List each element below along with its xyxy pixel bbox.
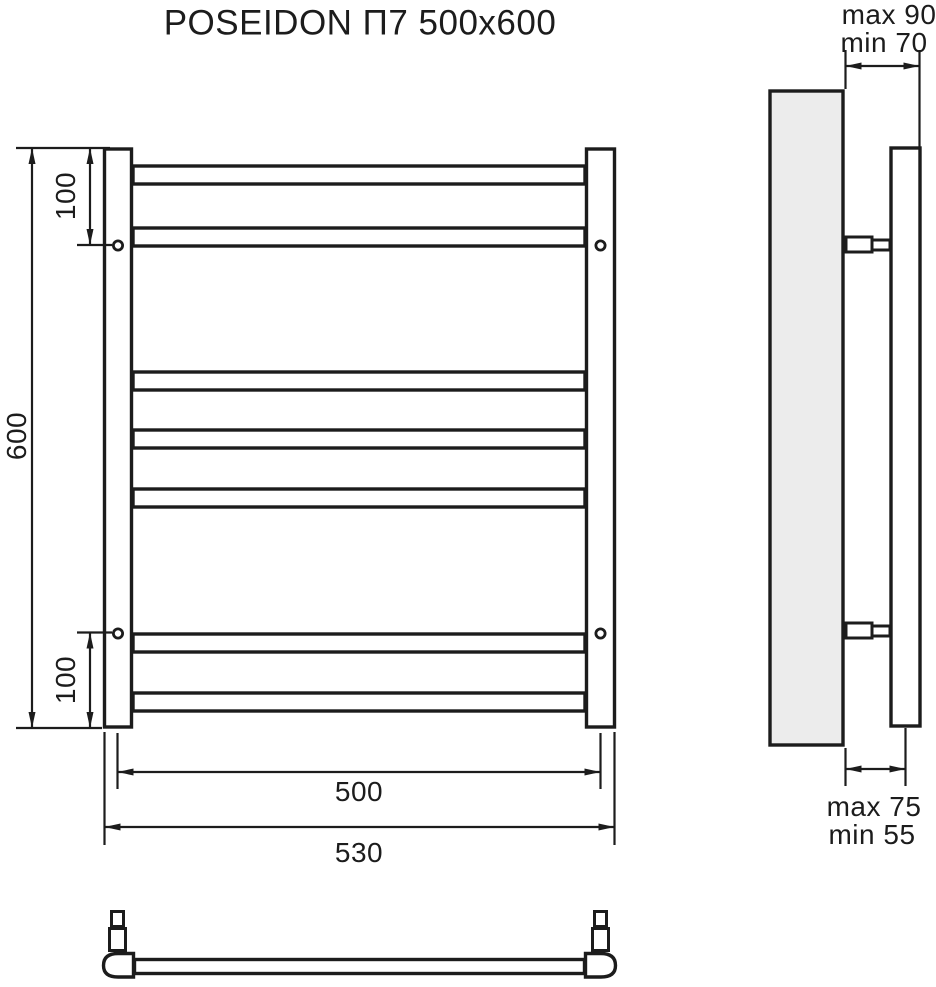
mounting-hole-bottom-right: [596, 629, 605, 638]
top-view-left-nipple: [112, 912, 124, 927]
dim-label-max-90: max 90: [842, 1, 936, 29]
top-view-right-bracket: [593, 929, 609, 951]
dim-label-100-bottom: 100: [52, 656, 80, 704]
top-view-right-cap: [586, 954, 616, 978]
drawing-title: POSEIDON П7 500x600: [164, 6, 557, 41]
top-view-right-nipple: [595, 912, 607, 927]
mounting-hole-bottom-left: [113, 629, 122, 638]
top-view: [104, 912, 616, 978]
right-post: [587, 149, 615, 727]
rung-3: [133, 372, 585, 390]
dim-label-min-70: min 70: [840, 29, 927, 57]
dim-label-100-top: 100: [52, 172, 80, 220]
side-post-tube: [891, 148, 920, 726]
side-view: [770, 50, 920, 786]
bracket-top-collar: [872, 240, 890, 250]
wall-panel: [770, 91, 843, 745]
left-post: [105, 149, 132, 727]
bracket-top-body: [846, 237, 872, 252]
bracket-bottom-collar: [872, 626, 890, 636]
rung-5: [133, 489, 585, 507]
dim-label-530: 530: [335, 839, 383, 867]
dim-label-600: 600: [3, 412, 31, 460]
drawing-linework: [0, 0, 936, 987]
top-view-crossbar: [135, 960, 585, 974]
rung-6: [133, 634, 585, 652]
mounting-hole-top-right: [596, 241, 605, 250]
rung-4: [133, 430, 585, 448]
bracket-bottom-body: [846, 623, 872, 638]
rung-7: [133, 693, 585, 711]
rung-2: [133, 228, 585, 246]
dim-label-min-55: min 55: [828, 821, 915, 849]
rung-1: [133, 166, 585, 184]
dim-label-500: 500: [335, 778, 383, 806]
dim-label-max-75: max 75: [827, 793, 922, 821]
mounting-hole-top-left: [113, 241, 122, 250]
front-view: [16, 148, 615, 845]
top-view-left-cap: [104, 954, 134, 978]
technical-drawing-page: POSEIDON П7 500x600 600 100 100 500 530 …: [0, 0, 936, 987]
top-view-left-bracket: [110, 929, 126, 951]
